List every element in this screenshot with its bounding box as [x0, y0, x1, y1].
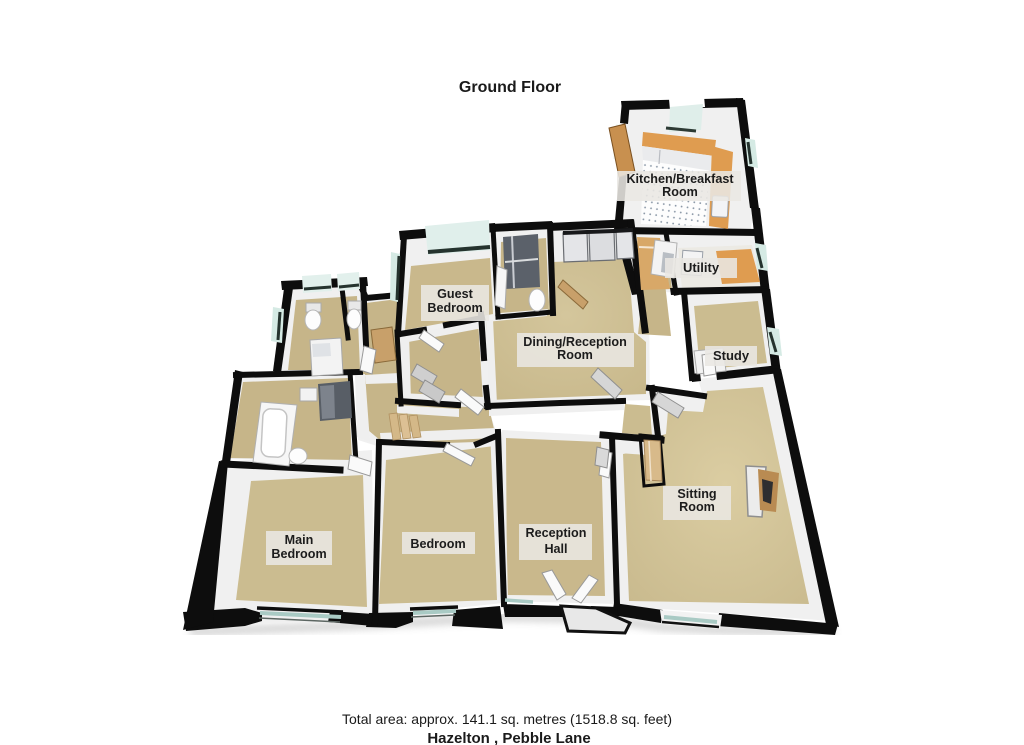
svg-text:Bedroom: Bedroom	[427, 301, 482, 315]
svg-text:Bedroom: Bedroom	[271, 547, 326, 561]
svg-text:Sitting: Sitting	[677, 487, 716, 501]
svg-text:Dining/Reception: Dining/Reception	[523, 335, 627, 349]
svg-text:Study: Study	[713, 348, 750, 363]
svg-text:Ground Floor: Ground Floor	[459, 79, 561, 96]
svg-text:Utility: Utility	[683, 260, 720, 275]
svg-text:Room: Room	[679, 500, 715, 514]
svg-text:Main: Main	[285, 533, 314, 547]
svg-text:Kitchen/Breakfast: Kitchen/Breakfast	[626, 172, 734, 186]
svg-text:Total area: approx. 141.1 sq.: Total area: approx. 141.1 sq. metres (15…	[342, 711, 672, 727]
svg-text:Bedroom: Bedroom	[410, 537, 465, 551]
svg-text:Room: Room	[662, 185, 698, 199]
svg-text:Hall: Hall	[544, 542, 567, 556]
svg-text:Reception: Reception	[526, 526, 587, 540]
svg-text:Guest: Guest	[437, 287, 473, 301]
svg-text:Room: Room	[557, 348, 593, 362]
svg-text:Hazelton , Pebble Lane: Hazelton , Pebble Lane	[427, 730, 590, 745]
